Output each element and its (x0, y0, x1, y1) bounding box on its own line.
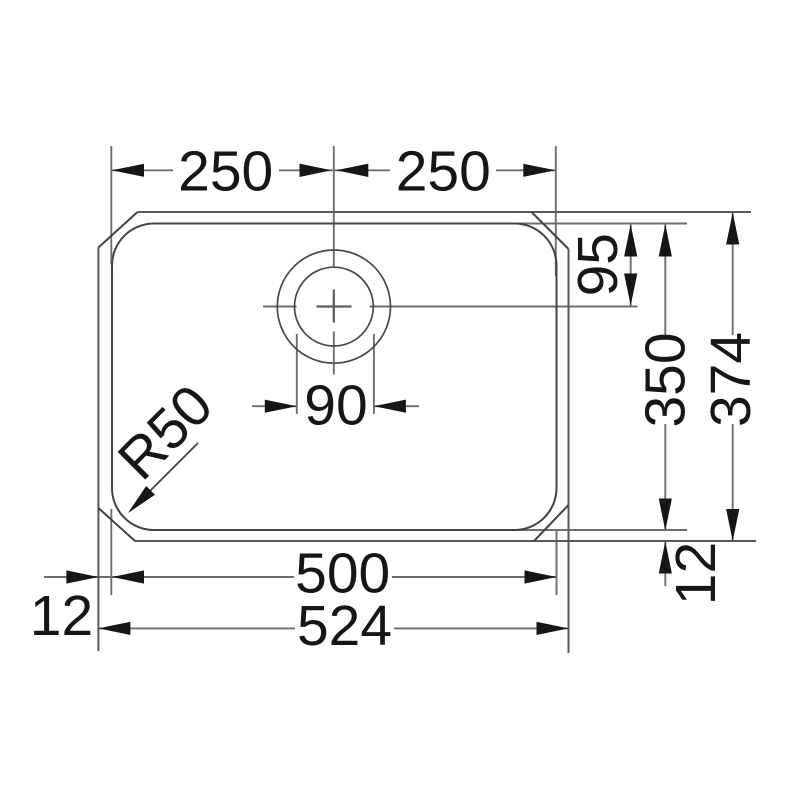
svg-text:250: 250 (396, 140, 491, 204)
svg-text:12: 12 (664, 542, 728, 605)
svg-text:95: 95 (566, 233, 630, 296)
svg-text:350: 350 (633, 332, 697, 427)
svg-text:250: 250 (178, 140, 273, 204)
svg-text:374: 374 (699, 332, 763, 427)
svg-text:12: 12 (30, 584, 93, 648)
svg-text:524: 524 (297, 594, 392, 658)
svg-text:90: 90 (304, 374, 367, 438)
